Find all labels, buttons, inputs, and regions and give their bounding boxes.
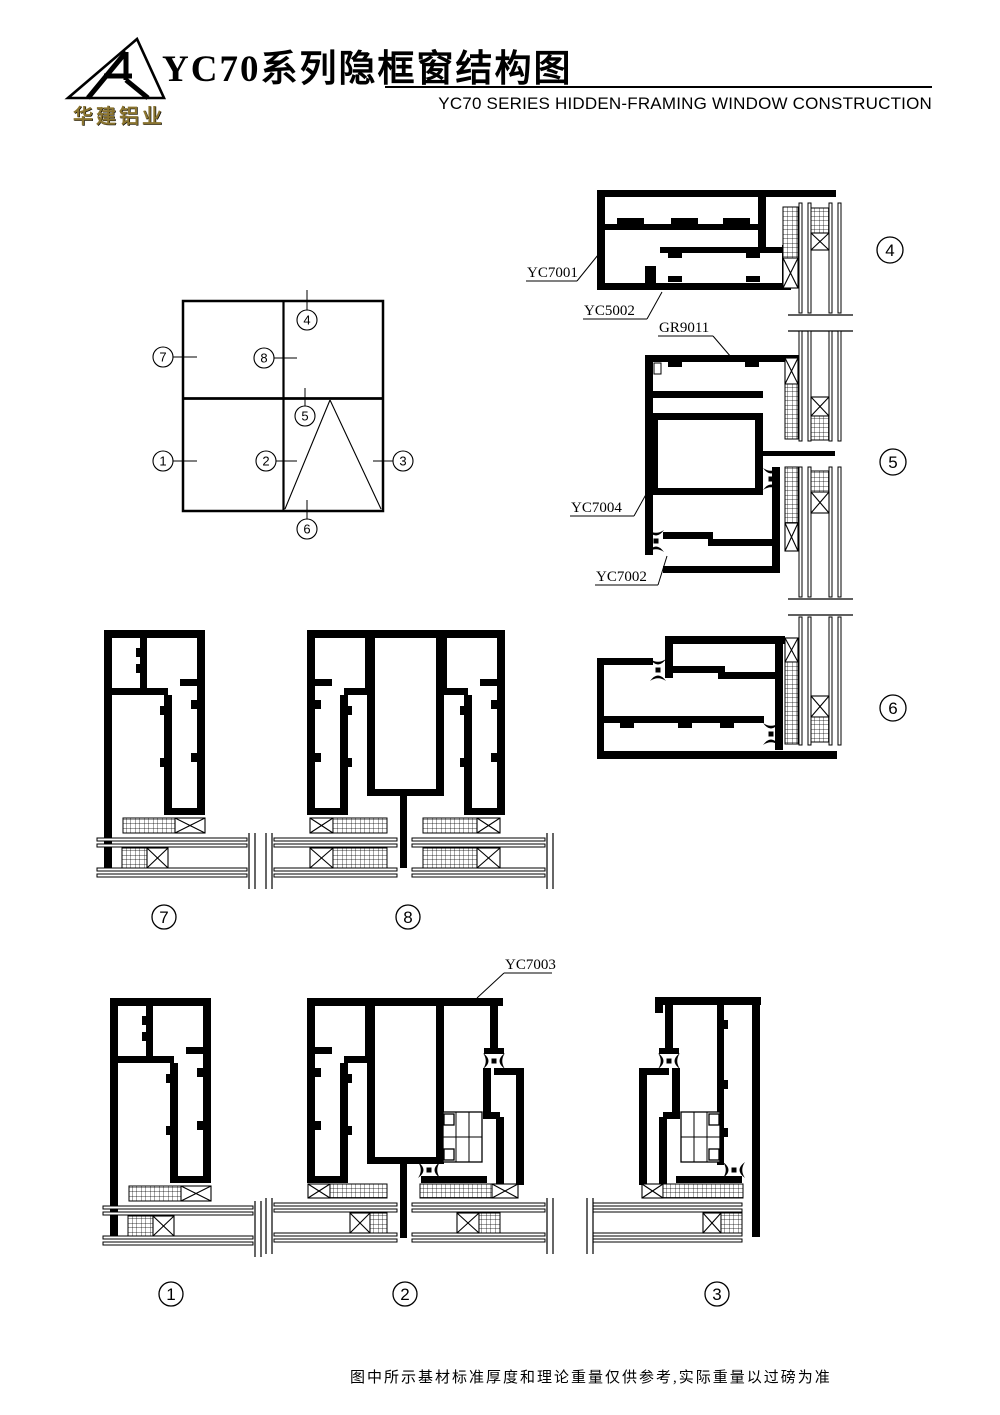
construction-drawing: 4 7 8 5 1 2 3 [0, 0, 1000, 1415]
callout-6: 6 [297, 500, 317, 539]
callout-2: 2 [256, 451, 297, 471]
detail-badge-6: 6 [880, 695, 906, 721]
callout-5: 5 [295, 388, 315, 426]
detail-section-4: 4 [597, 190, 903, 331]
detail-badge-1: 1 [159, 1282, 183, 1306]
window-schematic: 4 7 8 5 1 2 3 [153, 290, 413, 539]
detail-section-8: 8 [266, 630, 553, 929]
part-label-yc7003: YC7003 [477, 957, 556, 998]
svg-text:8: 8 [260, 351, 267, 366]
svg-text:YC7002: YC7002 [596, 569, 647, 585]
part-label-yc7002: YC7002 [595, 556, 667, 585]
sealant-strip [642, 1184, 743, 1198]
detail-section-5: 5 [645, 331, 906, 615]
svg-text:YC7001: YC7001 [527, 265, 578, 281]
sealant-strip [308, 1184, 518, 1198]
detail-badge-7: 7 [152, 905, 176, 929]
callout-7: 7 [153, 347, 197, 367]
detail-section-2: 2 [266, 998, 553, 1306]
svg-text:2: 2 [400, 1285, 409, 1304]
svg-text:8: 8 [403, 908, 412, 927]
svg-text:3: 3 [712, 1285, 721, 1304]
insulated-glass [587, 1198, 742, 1254]
detail-section-3: 3 [587, 997, 761, 1306]
insulated-glass [266, 833, 553, 889]
svg-text:YC5002: YC5002 [584, 303, 635, 319]
footer-note: 图中所示基材标准厚度和理论重量仅供参考,实际重量以过磅为准 [350, 1366, 832, 1387]
callout-8: 8 [254, 348, 297, 368]
callout-4: 4 [297, 290, 317, 330]
detail-section-1: 1 [103, 998, 261, 1306]
svg-text:3: 3 [399, 454, 406, 469]
svg-text:YC7004: YC7004 [571, 500, 622, 516]
detail-badge-3: 3 [705, 1282, 729, 1306]
detail-badge-4: 4 [877, 237, 903, 263]
part-label-yc7004: YC7004 [570, 489, 649, 516]
part-label-yc5002: YC5002 [583, 292, 662, 319]
sealant-strip [783, 207, 798, 288]
drawing-sheet: 华建铝业 YC70系列隐框窗结构图 YC70 SERIES HIDDEN-FRA… [0, 0, 1000, 1415]
svg-text:4: 4 [885, 241, 894, 260]
svg-text:GR9011: GR9011 [659, 320, 709, 336]
detail-section-6: 6 [597, 617, 906, 759]
svg-text:YC7003: YC7003 [505, 957, 556, 973]
svg-text:1: 1 [166, 1285, 175, 1304]
detail-section-7: 7 [97, 630, 255, 929]
svg-text:7: 7 [159, 908, 168, 927]
detail-badge-5: 5 [880, 449, 906, 475]
svg-text:4: 4 [303, 313, 310, 328]
svg-text:6: 6 [303, 522, 310, 537]
callout-3: 3 [373, 451, 413, 471]
svg-text:5: 5 [301, 409, 308, 424]
sealant-strip [785, 638, 798, 744]
detail-badge-8: 8 [396, 905, 420, 929]
svg-text:7: 7 [159, 350, 166, 365]
svg-text:6: 6 [888, 699, 897, 718]
svg-text:2: 2 [262, 454, 269, 469]
callout-1: 1 [153, 451, 197, 471]
part-label-gr9011: GR9011 [658, 320, 731, 357]
svg-text:1: 1 [159, 454, 166, 469]
svg-text:5: 5 [888, 453, 897, 472]
part-labels: YC7001 YC5002 GR9011 YC7004 YC7002 [477, 255, 731, 998]
insulated-glass [266, 1198, 553, 1254]
detail-badge-2: 2 [393, 1282, 417, 1306]
insulated-glass [799, 617, 841, 745]
part-label-yc7001: YC7001 [526, 255, 598, 281]
